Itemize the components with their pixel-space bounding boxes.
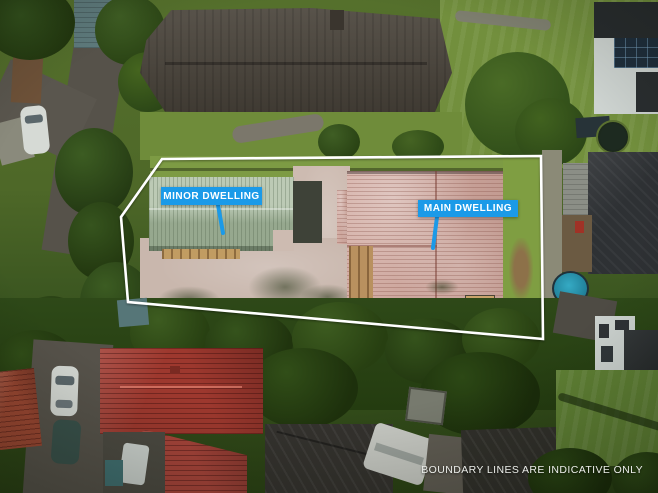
main-dwelling-callout-line — [433, 217, 437, 248]
aerial-photo: MINOR DWELLING MAIN DWELLING BOUNDARY LI… — [0, 0, 658, 493]
disclaimer-text: BOUNDARY LINES ARE INDICATIVE ONLY — [421, 464, 643, 476]
boundary-polygon — [121, 156, 543, 339]
minor-dwelling-callout-line — [218, 205, 223, 233]
annotation-overlay — [0, 0, 658, 493]
minor-dwelling-label: MINOR DWELLING — [161, 187, 262, 205]
main-dwelling-label: MAIN DWELLING — [418, 200, 518, 217]
